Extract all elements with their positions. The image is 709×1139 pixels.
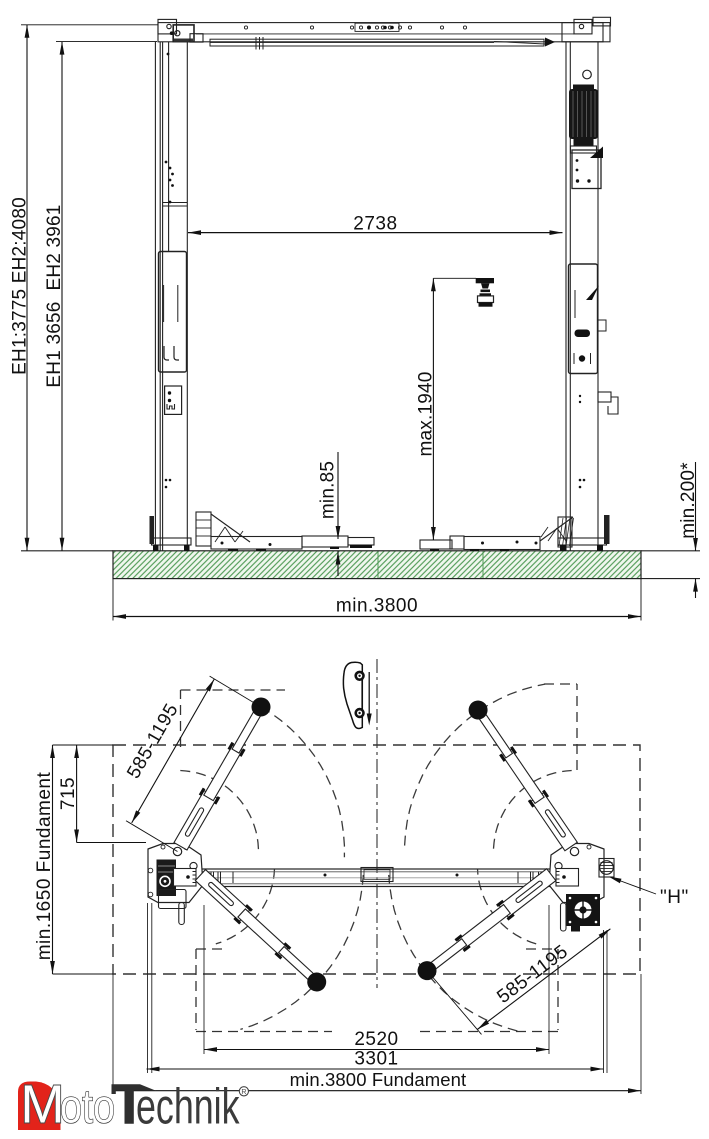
svg-text:min.3800: min.3800 bbox=[336, 596, 418, 617]
svg-text:EH1:3775 EH2:4080: EH1:3775 EH2:4080 bbox=[10, 197, 31, 375]
svg-text:min.1650 Fundament: min.1650 Fundament bbox=[34, 772, 55, 961]
svg-text:echnik: echnik bbox=[136, 1079, 240, 1135]
svg-text:3301: 3301 bbox=[354, 1049, 398, 1070]
svg-text:2738: 2738 bbox=[353, 214, 397, 235]
svg-text:"H": "H" bbox=[660, 887, 689, 908]
svg-text:2520: 2520 bbox=[354, 1029, 398, 1050]
svg-text:min.200*: min.200* bbox=[678, 462, 699, 539]
svg-text:min.85: min.85 bbox=[318, 461, 339, 519]
svg-text:oto: oto bbox=[60, 1080, 115, 1133]
svg-text:min.3800 Fundament: min.3800 Fundament bbox=[290, 1069, 467, 1090]
svg-text:M: M bbox=[21, 1075, 65, 1135]
svg-text:715: 715 bbox=[58, 777, 79, 810]
svg-text:EH1 3656 EH2 3961: EH1 3656 EH2 3961 bbox=[44, 204, 65, 387]
svg-text:max.1940: max.1940 bbox=[416, 371, 437, 456]
svg-text:R: R bbox=[241, 1089, 246, 1096]
